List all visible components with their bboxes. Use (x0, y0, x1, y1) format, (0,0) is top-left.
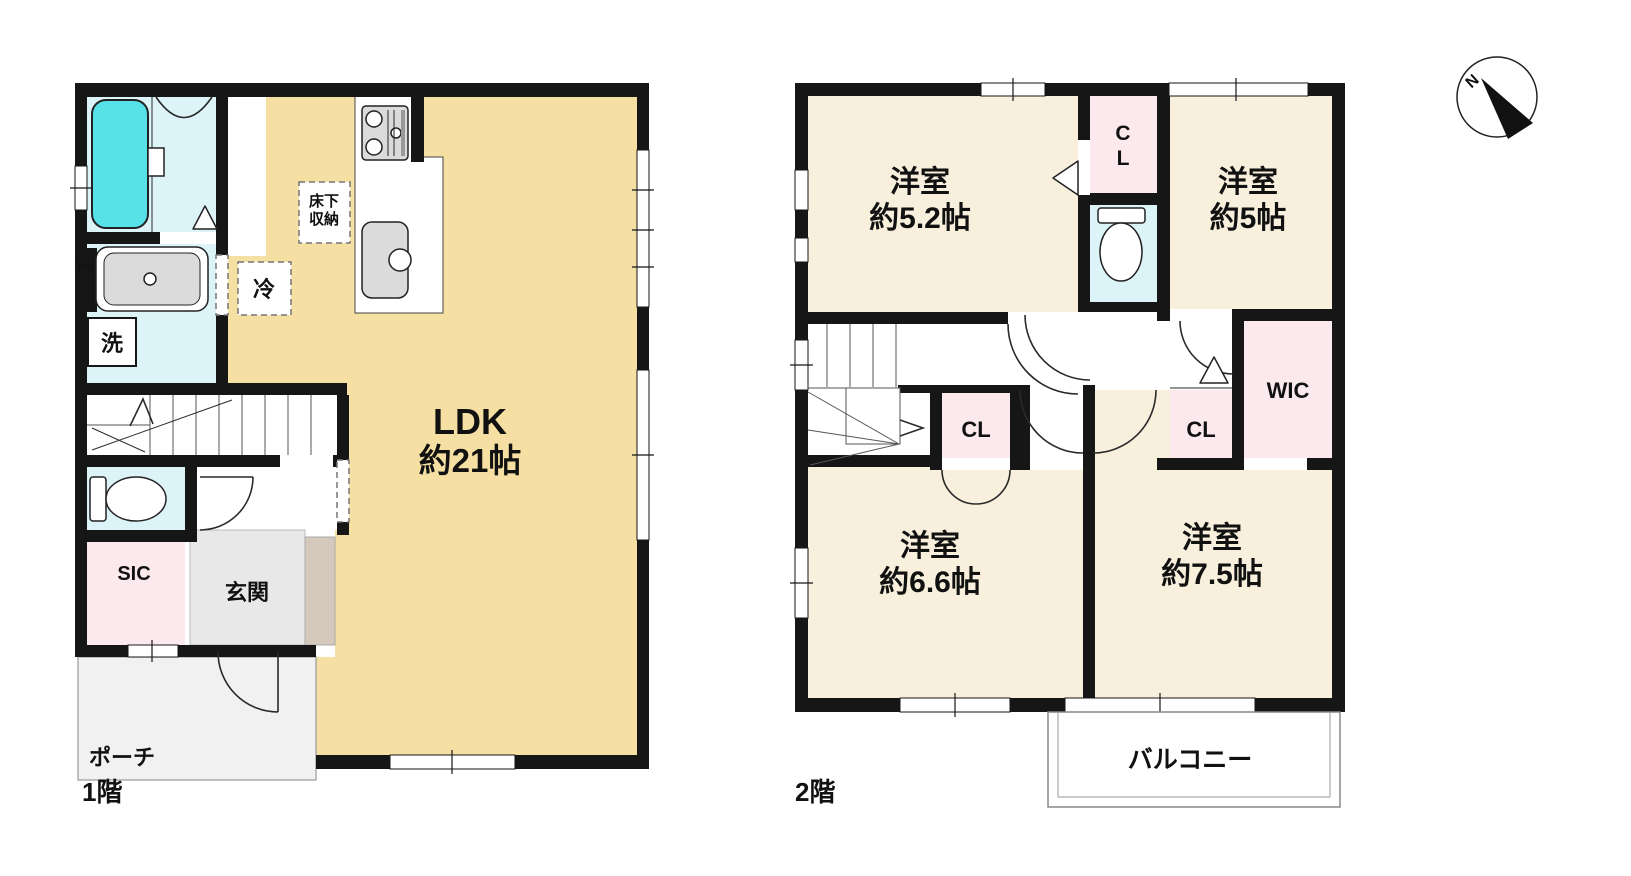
floor1-label: 1階 (82, 777, 122, 807)
room-52-label: 洋室 (890, 165, 950, 199)
toilet1-fixture (90, 477, 166, 521)
floorplan-canvas: LDK 約21帖 床下 収納 冷 洗 PS SIC 玄関 ポーチ 1階 (0, 0, 1631, 876)
room-5-label: 洋室 (1218, 165, 1278, 199)
closet-left-label: CL (961, 417, 990, 442)
ldk-size-label: 約21帖 (419, 442, 522, 479)
bath-counter (148, 148, 164, 176)
laundry-label: 洗 (101, 331, 123, 356)
closet-top-label-l: L (1117, 147, 1130, 170)
ps-pillar (75, 248, 97, 312)
floor1-plan: LDK 約21帖 床下 収納 冷 洗 PS SIC 玄関 ポーチ 1階 (70, 83, 654, 807)
underfloor-storage-label-1: 床下 (309, 192, 339, 210)
kitchen-sink (362, 222, 411, 298)
compass: N (1457, 57, 1537, 139)
ldk-hall-opening (337, 460, 349, 522)
room-75-label: 洋室 (1182, 521, 1242, 555)
floorplan-svg: LDK 約21帖 床下 収納 冷 洗 PS SIC 玄関 ポーチ 1階 (0, 0, 1631, 876)
stove (362, 106, 408, 160)
toilet2-fixture (1098, 208, 1145, 281)
closet-right-label: CL (1186, 417, 1215, 442)
room-52-size: 約5.2帖 (869, 202, 971, 235)
vanity-sink (96, 247, 208, 311)
stairs-floor1 (87, 395, 311, 455)
room-75-size: 約7.5帖 (1161, 558, 1263, 591)
ldk-label: LDK (433, 401, 507, 442)
room-66-label: 洋室 (900, 529, 960, 563)
floor2-label: 2階 (795, 777, 835, 807)
sic-floor (87, 542, 185, 645)
genkan-step (305, 537, 335, 645)
floor2-plan: 洋室 約5.2帖 洋室 約5帖 洋室 約6.6帖 洋室 約7.5帖 C L CL… (790, 78, 1345, 807)
stairs2-arrow (900, 420, 923, 436)
fridge-label: 冷 (253, 277, 275, 302)
porch-label: ポーチ (89, 745, 155, 770)
bathtub (92, 100, 148, 228)
ps-label: PS (77, 260, 95, 275)
room-66-size: 約6.6帖 (879, 566, 981, 599)
closet-top-label-c: C (1115, 122, 1130, 145)
wic-label: WIC (1267, 378, 1310, 403)
room-5-size: 約5帖 (1210, 202, 1287, 235)
genkan-label: 玄関 (225, 580, 269, 605)
washroom-door (216, 255, 228, 315)
balcony-label: バルコニー (1128, 746, 1253, 774)
sic-label: SIC (117, 563, 150, 585)
underfloor-storage-label-2: 収納 (309, 210, 339, 228)
toilet1-door-arc (200, 477, 253, 530)
